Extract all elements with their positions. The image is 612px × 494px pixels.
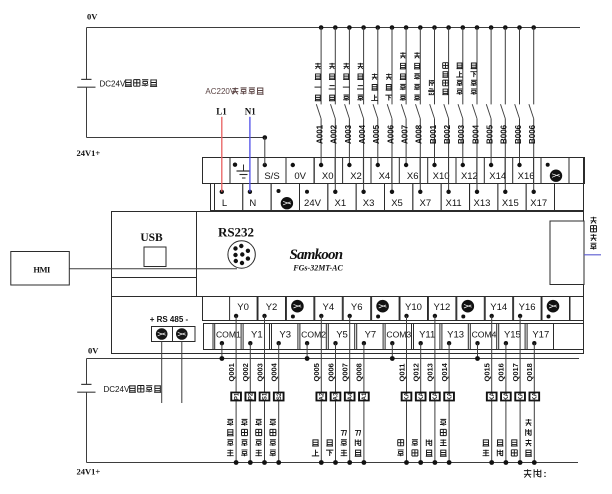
svg-text:COM4: COM4	[472, 330, 497, 340]
svg-text:X17: X17	[530, 198, 547, 209]
svg-text:Q016: Q016	[497, 363, 506, 381]
svg-text:Q018: Q018	[525, 363, 534, 381]
svg-text:S2: S2	[277, 392, 283, 400]
svg-text:Y1: Y1	[251, 330, 263, 341]
svg-text:0V: 0V	[294, 171, 306, 182]
svg-text:X14: X14	[489, 171, 506, 182]
svg-text:HMI: HMI	[33, 264, 51, 274]
svg-text:X0: X0	[322, 171, 334, 182]
svg-text::: :	[544, 469, 547, 479]
svg-text:KA: KA	[533, 392, 539, 401]
svg-text:X13: X13	[474, 198, 491, 209]
svg-text:X4: X4	[379, 171, 391, 182]
svg-text:KA: KA	[518, 392, 524, 401]
svg-text:S/S: S/S	[264, 171, 279, 182]
svg-text:Q017: Q017	[511, 363, 520, 381]
svg-text:A001: A001	[316, 124, 325, 144]
svg-text:Q002: Q002	[241, 363, 250, 381]
svg-text:A005: A005	[372, 124, 381, 144]
svg-text:COM3: COM3	[386, 330, 411, 340]
svg-text:B004: B004	[471, 124, 480, 144]
svg-text:L1: L1	[216, 107, 227, 117]
svg-text:KA: KA	[490, 392, 496, 401]
svg-text:24V: 24V	[304, 198, 322, 209]
svg-text:Q003: Q003	[255, 363, 264, 381]
svg-text:Q011: Q011	[397, 364, 406, 382]
svg-text:COM2: COM2	[301, 330, 326, 340]
svg-text:Q005: Q005	[312, 363, 321, 381]
svg-text:Q007: Q007	[341, 363, 350, 381]
svg-text:Q014: Q014	[440, 362, 449, 381]
svg-text:AC220V: AC220V	[205, 87, 235, 96]
svg-text:B001: B001	[429, 124, 438, 144]
svg-text:X10: X10	[433, 171, 450, 182]
svg-text:X7: X7	[419, 198, 431, 209]
svg-text:N1: N1	[245, 107, 256, 117]
svg-text:X12: X12	[461, 171, 478, 182]
svg-text:P2: P2	[249, 392, 255, 400]
svg-text:Y16: Y16	[519, 302, 536, 313]
svg-text:0V: 0V	[87, 12, 98, 22]
svg-text:A006: A006	[386, 124, 395, 144]
svg-text:Samkoon: Samkoon	[290, 247, 343, 263]
svg-text:Y12: Y12	[433, 302, 450, 313]
svg-text:Q001: Q001	[227, 363, 236, 381]
svg-text:A003: A003	[344, 124, 353, 144]
svg-text:24V1+: 24V1+	[77, 466, 101, 476]
svg-text:Y7: Y7	[365, 330, 377, 341]
svg-text:X15: X15	[502, 198, 519, 209]
svg-text:B005: B005	[486, 124, 495, 144]
svg-text:DC24V: DC24V	[104, 385, 130, 394]
svg-text:X2: X2	[350, 171, 362, 182]
svg-text:0V: 0V	[88, 345, 99, 355]
svg-text:+ RS 485 -: + RS 485 -	[150, 315, 189, 324]
svg-text:COM1: COM1	[216, 330, 241, 340]
svg-text:A2: A2	[320, 392, 326, 400]
svg-text:B003: B003	[457, 124, 466, 144]
svg-text:Y11: Y11	[419, 330, 435, 341]
svg-text:KA: KA	[504, 392, 510, 401]
svg-text:Y2: Y2	[266, 302, 278, 313]
svg-text:X16: X16	[518, 171, 535, 182]
svg-text:Y10: Y10	[405, 302, 422, 313]
svg-text:Y0: Y0	[237, 302, 249, 313]
svg-text:B002: B002	[443, 124, 452, 144]
svg-text:P1: P1	[234, 392, 240, 400]
svg-text:Q013: Q013	[426, 363, 435, 381]
svg-text:KA: KA	[405, 392, 411, 401]
svg-text:KA: KA	[447, 392, 453, 401]
svg-text:X3: X3	[363, 198, 375, 209]
svg-text:Y14: Y14	[490, 302, 507, 313]
svg-text:A3: A3	[334, 392, 340, 400]
svg-text:Y13: Y13	[447, 330, 464, 341]
svg-text:L: L	[222, 198, 227, 209]
svg-text:N: N	[249, 198, 256, 209]
svg-text:A007: A007	[401, 124, 410, 144]
svg-text:Y4: Y4	[322, 302, 334, 313]
svg-text:KA: KA	[419, 392, 425, 401]
svg-text:Y15: Y15	[504, 330, 521, 341]
svg-text:FGs-32MT-AC: FGs-32MT-AC	[292, 263, 343, 272]
svg-text:B006: B006	[528, 124, 537, 144]
svg-text:Q004: Q004	[270, 362, 279, 381]
svg-text:A4: A4	[348, 392, 354, 400]
svg-text:Y5: Y5	[336, 330, 348, 341]
svg-text:Y17: Y17	[532, 330, 549, 341]
svg-text:Q006: Q006	[326, 363, 335, 381]
svg-text:A008: A008	[415, 124, 424, 144]
svg-text:B006: B006	[514, 124, 523, 144]
svg-text:X1: X1	[334, 198, 346, 209]
svg-text:KA: KA	[433, 392, 439, 401]
svg-text:24V1+: 24V1+	[77, 148, 101, 158]
svg-text:Y3: Y3	[279, 330, 291, 341]
svg-text:USB: USB	[140, 232, 163, 244]
svg-text:X5: X5	[391, 198, 403, 209]
svg-text:X11: X11	[445, 198, 461, 209]
svg-text:S1: S1	[263, 392, 269, 400]
svg-text:DC24V: DC24V	[100, 79, 126, 88]
svg-text:Y6: Y6	[351, 302, 363, 313]
svg-text:B006: B006	[500, 124, 509, 144]
svg-text:RS232: RS232	[218, 225, 254, 240]
svg-text:Q012: Q012	[412, 363, 421, 381]
svg-text:A1: A1	[362, 392, 368, 400]
svg-text:X6: X6	[407, 171, 419, 182]
svg-text:Q008: Q008	[355, 363, 364, 381]
svg-text:A002: A002	[330, 124, 339, 144]
svg-text:Q015: Q015	[483, 363, 492, 381]
svg-text:A004: A004	[358, 124, 367, 144]
